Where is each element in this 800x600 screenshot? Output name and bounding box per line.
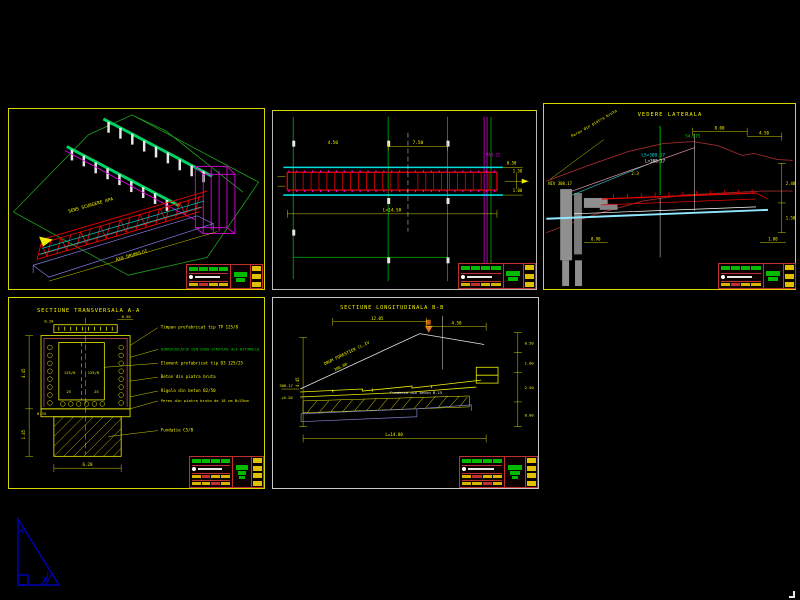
dim-240: 2.40 xyxy=(786,181,795,186)
dim-top: 12.05 xyxy=(371,316,384,321)
dim-lines xyxy=(281,318,521,443)
slope-left: 25 xyxy=(66,390,71,394)
viewport-isometric: SENS SCURGERE APA AXA DRUMULUI xyxy=(8,108,265,290)
dim-r4: 8.00 xyxy=(525,414,535,418)
deck-lines xyxy=(39,201,204,254)
level-l: L=308.17 xyxy=(645,158,665,163)
ditch-lines xyxy=(484,117,487,279)
axis-arrow xyxy=(522,179,529,184)
dim-r3: 2.50 xyxy=(525,386,535,390)
approval-stamp-icon xyxy=(506,271,520,276)
title-block-info xyxy=(187,265,231,288)
guardrail-beams xyxy=(67,119,212,206)
isometric-drawing: SENS SCURGERE APA AXA DRUMULUI xyxy=(9,109,264,289)
callout-7: Fundatie C5/B xyxy=(161,428,194,433)
title-block xyxy=(189,456,264,488)
callout-labels: Timpan prefabricat tip TP 125/8 HIDROIZO… xyxy=(161,325,260,433)
callout-4: Beton din piatra bruta xyxy=(161,374,216,379)
callout-2: HIDROIZOLATIE DIN DOUA STRATURI ALE BITU… xyxy=(161,347,260,351)
culvert-ladder xyxy=(287,172,497,190)
iso-label-axis: AXA DRUMULUI xyxy=(115,248,148,263)
dim-top2: 0.50 xyxy=(122,315,132,319)
title-block-info xyxy=(459,264,504,288)
title-block-edge xyxy=(524,264,535,288)
elev-green: 54.075 xyxy=(685,134,700,139)
road-edge-lines xyxy=(293,117,491,281)
dim-left-f: 1.45 xyxy=(21,429,26,439)
lateral-drawing: VEDERE LATERALA xyxy=(544,104,795,289)
dim-lines xyxy=(584,128,786,243)
approval-stamp-icon xyxy=(234,272,247,277)
dim-left: 4.45 xyxy=(295,377,300,387)
callout-1: Timpan prefabricat tip TP 125/8 xyxy=(161,325,239,330)
fundatie-label: Fundatie din beton B.15 xyxy=(390,391,442,395)
title-block xyxy=(458,263,536,289)
dim-end: 0.50 xyxy=(507,160,517,165)
title-block-edge xyxy=(251,265,262,288)
dim-800: 8.00 xyxy=(714,126,724,131)
title-block xyxy=(718,263,796,289)
dim-r2: 1.00 xyxy=(525,361,535,365)
long-section-title: SECTIUNE LONGITUDINALA B-B xyxy=(340,305,444,311)
slope-23: 2:3 xyxy=(631,171,639,176)
title-block-info xyxy=(190,457,233,487)
dim-bottom-total: L=14.00 xyxy=(385,432,403,437)
callout-6: Pereu din piatra bruta de 18 cm B=25cm xyxy=(161,398,250,403)
title-block-stamp xyxy=(231,265,251,288)
dim-bottom: 6.20 xyxy=(83,462,93,467)
foundation xyxy=(54,417,121,457)
dim-d4: 1.00 xyxy=(513,188,523,193)
foundation-outline xyxy=(301,405,471,422)
dim-d1: 4.50 xyxy=(328,140,339,146)
approval-stamp-icon xyxy=(766,271,780,276)
dim-left-h: 4.45 xyxy=(21,368,26,378)
cad-sheet: SENS SCURGERE APA AXA DRUMULUI xyxy=(0,0,800,600)
corner-mark xyxy=(789,591,795,598)
abutment-piers xyxy=(560,189,617,286)
plus-label: +0.20 xyxy=(281,396,293,400)
slope-triangle-symbol xyxy=(14,516,64,590)
approval-stamp-icon xyxy=(508,465,522,470)
dim-base: 0.35 xyxy=(37,412,46,416)
wingwall-frame xyxy=(65,151,235,234)
dim-450: 4.50 xyxy=(759,131,769,136)
slope-lines xyxy=(550,140,694,195)
dim-top: 0.20 xyxy=(44,320,54,324)
cell-left: 125/8 xyxy=(64,371,76,375)
callout-5: Rigola din beton B2/50 xyxy=(161,388,216,393)
cross-section-title: SECTIUNE TRANSVERSALA A-A xyxy=(37,308,140,314)
culvert-edges xyxy=(283,167,503,195)
title-block-edge xyxy=(784,264,795,288)
pereu-label: Pereu din piatra bruta xyxy=(570,108,618,139)
slope-right: 25 xyxy=(94,390,99,394)
dim-d3: 1.50 xyxy=(513,168,523,173)
dim-r1: 0.50 xyxy=(525,342,535,346)
title-block-edge xyxy=(526,457,537,487)
lateral-title: VEDERE LATERALA xyxy=(638,112,703,118)
road-label: DRUM FORESTIER CL.IV xyxy=(323,340,370,367)
title-block-stamp xyxy=(505,457,526,487)
iso-label-flow: SENS SCURGERE APA xyxy=(68,196,114,215)
title-block-stamp xyxy=(764,264,784,288)
niv-label: NIV 308.17 xyxy=(548,181,572,186)
title-block-info xyxy=(719,264,764,288)
dim-total: L=14.50 xyxy=(383,207,402,213)
title-block xyxy=(459,456,538,488)
approval-stamp-icon xyxy=(236,465,248,470)
viewport-lateral: VEDERE LATERALA xyxy=(543,103,796,290)
note-var: VAR 25 xyxy=(486,152,501,157)
dim-d2: 7.50 xyxy=(413,140,424,146)
deck-railing xyxy=(602,189,768,205)
dim-090: 0.90 xyxy=(591,237,601,242)
callout-3: Element prefabricat tip D3 125/25 xyxy=(161,360,244,365)
title-block-stamp xyxy=(504,264,524,288)
title-block-stamp xyxy=(233,457,252,487)
dim-100: 1.00 xyxy=(768,237,778,242)
title-block xyxy=(186,264,263,289)
title-block-info xyxy=(460,457,505,487)
level-label: 308.17 xyxy=(279,384,293,388)
dim-150: 1.50 xyxy=(786,216,795,221)
dim-top2: 4.50 xyxy=(451,321,461,326)
cell-right: 125/8 xyxy=(88,371,100,375)
break-symbols xyxy=(292,141,449,264)
title-block-edge xyxy=(252,457,263,487)
